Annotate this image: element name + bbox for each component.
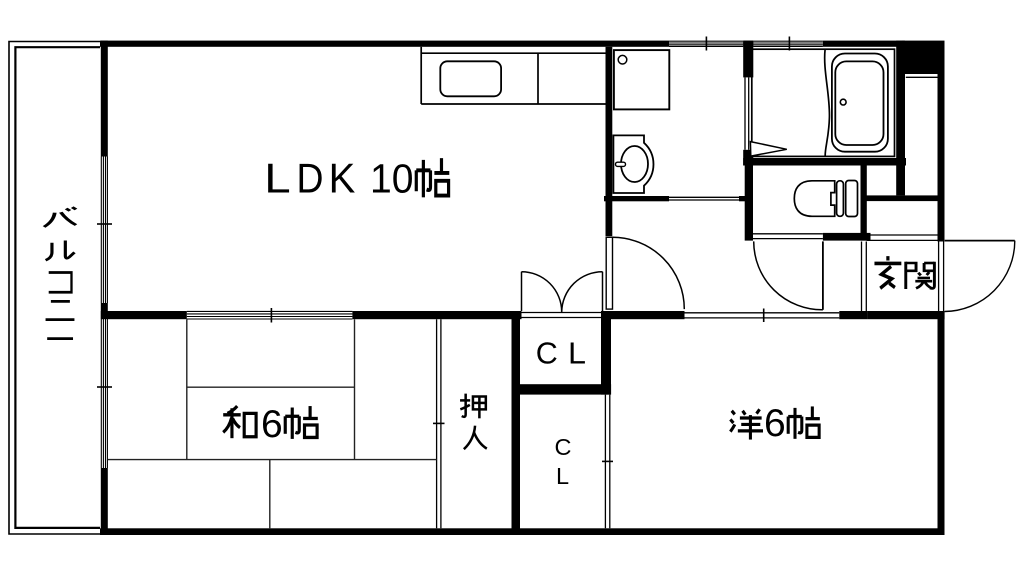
- svg-text:L: L: [556, 463, 569, 489]
- svg-text:6: 6: [764, 402, 786, 445]
- svg-text:L: L: [264, 155, 290, 202]
- svg-text:6: 6: [261, 403, 283, 446]
- svg-text:K: K: [329, 155, 356, 202]
- svg-text:C: C: [555, 434, 572, 460]
- svg-text:C: C: [536, 337, 558, 371]
- svg-text:L: L: [568, 337, 586, 371]
- svg-text:D: D: [297, 155, 324, 202]
- svg-text:10: 10: [370, 156, 414, 202]
